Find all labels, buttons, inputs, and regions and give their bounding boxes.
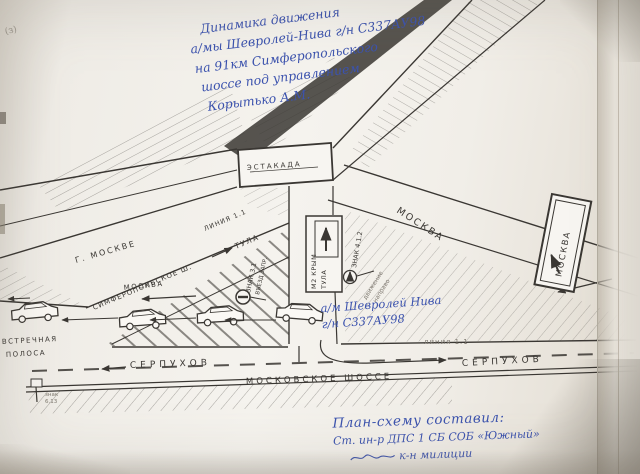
- m2-sign-label-1: М2 Крым: [310, 254, 318, 289]
- bottom-left-paper-edge: [0, 444, 130, 474]
- left-edge-mark: [0, 112, 6, 124]
- label-line-11-upper: линия 1.1: [203, 208, 248, 233]
- m2-sign-label-2: Тула: [320, 270, 328, 290]
- km-post-label-1: знак: [45, 392, 59, 398]
- label-serpukhov-left: Серпухов: [130, 358, 211, 371]
- label-line-11-lower: линия 1.1: [424, 338, 469, 346]
- tula-ramp-arrow: [212, 248, 232, 257]
- top-right-shadow: [560, 0, 640, 62]
- hatch-left-sliver: [0, 264, 86, 306]
- label-oncoming-lane-2: полоса: [6, 349, 47, 359]
- moscow-direction-board: Москва: [534, 194, 591, 292]
- hatch-below-highway: [28, 378, 452, 414]
- trajectory-arrow-3: [62, 318, 118, 320]
- label-tula: Тула: [232, 232, 260, 251]
- hatch-under-overpass: [240, 188, 288, 218]
- label-oncoming-lane-1: встречная: [2, 335, 58, 346]
- photo-of-accident-scheme-page: эстакада Москва М2 Крым Тула знак 3.1 въ…: [0, 0, 640, 474]
- km-post-label-2: 6.13: [45, 399, 58, 405]
- label-to-moscow: г. Москве: [74, 239, 137, 265]
- m2-krym-tula-sign: М2 Крым Тула: [306, 216, 342, 292]
- left-edge-mark: [0, 204, 5, 234]
